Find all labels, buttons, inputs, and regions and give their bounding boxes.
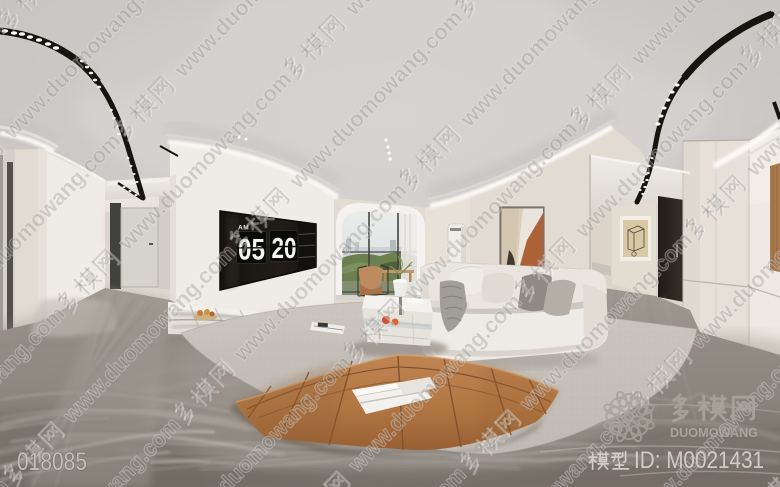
svg-text:018085: 018085 [17,448,87,476]
svg-text:ID: M0021431: ID: M0021431 [634,447,764,474]
svg-text:20: 20 [272,233,297,265]
svg-text:05: 05 [238,234,265,267]
svg-text:DUOMOWANG: DUOMOWANG [670,426,758,440]
